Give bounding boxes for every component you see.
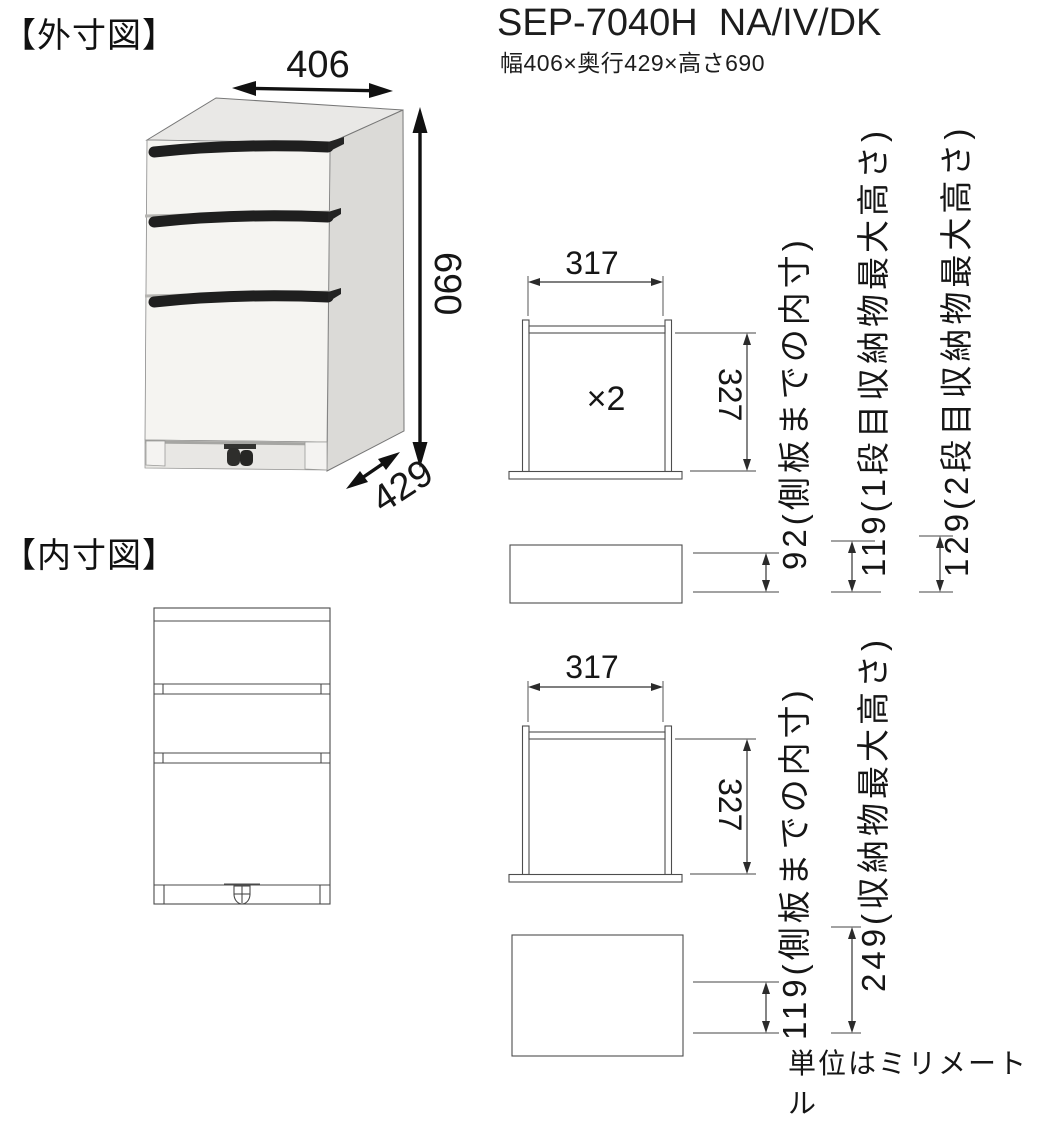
- lower-width-value: 317: [542, 649, 642, 686]
- base-shadow-line: [145, 442, 327, 444]
- lower-max-height-label: 249(収納物最大高さ): [857, 636, 891, 992]
- upper-multiplier: ×2: [556, 380, 656, 419]
- lower-drawer-box-profile: [512, 935, 683, 1056]
- tier2-max-label: 129(2段目収納物最大高さ): [940, 125, 974, 577]
- lower-height-value: 327: [714, 778, 746, 831]
- upper-width-value: 317: [542, 245, 642, 282]
- drawer-handle: [154, 216, 328, 222]
- top-rail: [529, 732, 665, 739]
- cabinet-front-elevation-drawing: [145, 600, 337, 912]
- upper-height-value: 327: [714, 368, 746, 421]
- base-left-foot: [146, 441, 165, 466]
- lower-width-dimension: [528, 681, 663, 722]
- right-side-panel: [665, 726, 672, 875]
- elevation-outline: [154, 608, 330, 904]
- top-rail: [529, 326, 665, 333]
- tier1-max-label: 119(1段目収納物最大高さ): [857, 127, 891, 577]
- drawer-handle: [154, 146, 328, 152]
- left-side-panel: [523, 320, 530, 472]
- upper-drawer-box-profile: [510, 545, 682, 603]
- product-title: SEP-7040H NA/IV/DK: [497, 2, 881, 45]
- bottom-board: [509, 472, 682, 480]
- base-right-foot: [305, 442, 327, 470]
- drawer-handle: [154, 296, 328, 302]
- width-dimension-value: 406: [258, 44, 378, 87]
- upper-inner-depth-label: 92(側板までの内寸): [778, 236, 812, 570]
- section-label-internal: 【内寸図】: [2, 528, 177, 577]
- lower-cavity-cross-section: [509, 726, 682, 882]
- upper-width-dimension: [528, 276, 663, 316]
- inner-depth-119-dimension: [693, 982, 779, 1033]
- bottom-board: [509, 875, 682, 883]
- product-size-subtitle: 幅406×奥行429×高さ690: [500, 44, 765, 78]
- inner-depth-92-dimension: [693, 553, 779, 592]
- unit-note: 単位はミリメートル: [788, 1042, 1051, 1122]
- page-background: { "page": { "section_external_label": "【…: [0, 0, 1051, 1080]
- height-dimension-value: 690: [428, 252, 466, 315]
- left-side-panel: [523, 726, 530, 875]
- lower-inner-depth-label: 119(側板までの内寸): [778, 686, 812, 1040]
- right-side-panel: [665, 320, 672, 472]
